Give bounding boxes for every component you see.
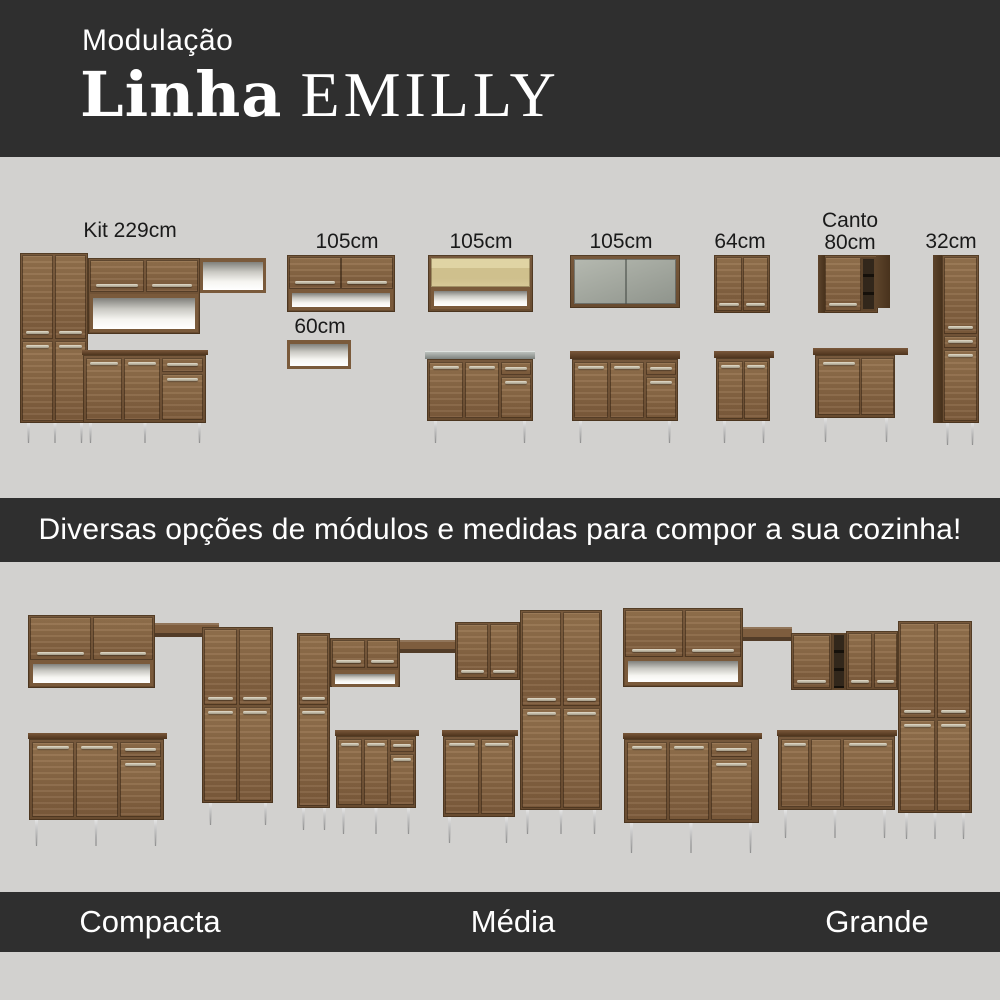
cabinet-leg bbox=[374, 808, 379, 834]
module-wall-cabinet-105a bbox=[287, 255, 395, 313]
cabinet-legs bbox=[301, 808, 327, 830]
cabinet-leg bbox=[433, 421, 438, 443]
cabinet-handle bbox=[716, 763, 747, 766]
label-wall-105-c: 105cm bbox=[561, 231, 681, 253]
kitchen-grande bbox=[615, 602, 993, 864]
cabinet-door bbox=[90, 260, 144, 292]
cabinet-leg bbox=[26, 423, 31, 443]
footer-strip bbox=[0, 952, 1000, 1000]
module-wall-corner-80 bbox=[818, 255, 890, 313]
cabinet-legs bbox=[88, 423, 202, 443]
cabinet-handle bbox=[96, 284, 137, 287]
cabinet-door bbox=[465, 362, 499, 418]
cabinet-handle bbox=[433, 366, 459, 369]
cabinet-leg bbox=[689, 823, 694, 853]
cabinet-handle bbox=[567, 698, 595, 701]
cabinet-door bbox=[93, 617, 153, 660]
title-linha: Linha bbox=[80, 58, 282, 131]
cabinet-handle bbox=[152, 284, 192, 287]
cabinet-handle bbox=[347, 281, 387, 284]
cabinet-leg bbox=[748, 823, 753, 853]
cabinet-handle bbox=[295, 281, 335, 284]
cabinet-door bbox=[390, 754, 414, 805]
cabinet-door bbox=[627, 742, 667, 820]
cabinet-handle bbox=[632, 746, 662, 749]
open-shelf bbox=[200, 258, 266, 293]
cabinet-door bbox=[490, 624, 518, 678]
cabinet-door bbox=[793, 635, 830, 688]
kitchen-compacta bbox=[20, 608, 300, 860]
cabinet-leg bbox=[823, 418, 828, 442]
cabinet-handle bbox=[716, 748, 747, 751]
cabinet-leg bbox=[94, 820, 99, 846]
cabinet-handle bbox=[941, 724, 966, 727]
cabinet-leg bbox=[904, 813, 909, 839]
label-grande: Grande bbox=[787, 892, 967, 952]
cabinet-leg bbox=[301, 808, 306, 830]
kitchen-media bbox=[295, 608, 607, 866]
cabinet-legs bbox=[629, 823, 753, 853]
cabinet-handle bbox=[823, 362, 855, 365]
cabinet-leg bbox=[406, 808, 411, 834]
cabinet-door bbox=[718, 361, 743, 419]
cabinet-handle bbox=[505, 367, 528, 370]
cabinet-handle bbox=[90, 362, 117, 365]
cabinet-door bbox=[445, 739, 479, 814]
open-shelf bbox=[289, 289, 393, 310]
cabinet-door bbox=[781, 739, 809, 807]
cabinet-leg bbox=[34, 820, 39, 846]
cabinet-legs bbox=[447, 817, 509, 843]
cabinet-handle bbox=[26, 345, 50, 348]
cabinet-door bbox=[204, 629, 237, 705]
open-shelf-dark bbox=[832, 633, 846, 690]
header: Modulação Linha EMILLY bbox=[0, 0, 1000, 157]
cabinet-handle bbox=[26, 331, 50, 334]
cabinet-door bbox=[364, 739, 388, 805]
cabinet-door bbox=[900, 623, 935, 718]
cabinet-handle bbox=[167, 378, 198, 381]
cabinet-handle bbox=[904, 724, 931, 727]
cabinet-leg bbox=[504, 817, 509, 843]
cabinet-door bbox=[744, 361, 768, 419]
cabinet-handle bbox=[851, 680, 869, 683]
kitchens-section bbox=[0, 562, 1000, 892]
label-compacta: Compacta bbox=[60, 892, 240, 952]
cabinet-handle bbox=[632, 649, 676, 652]
page: Modulação Linha EMILLY Kit 229cm 105cm 6… bbox=[0, 0, 1000, 1000]
cabinet-legs bbox=[578, 421, 672, 443]
cabinet-legs bbox=[26, 423, 84, 443]
countertop bbox=[714, 351, 774, 358]
open-shelf bbox=[625, 657, 741, 685]
cabinet-handle bbox=[243, 711, 267, 714]
cabinet-handle bbox=[341, 743, 359, 746]
cabinet-handle bbox=[59, 331, 83, 334]
cabinet-legs bbox=[904, 813, 966, 839]
cabinet-handle bbox=[393, 758, 411, 761]
label-wall-105-b: 105cm bbox=[421, 231, 541, 253]
cabinet-leg bbox=[522, 421, 527, 443]
cabinet-door bbox=[900, 720, 935, 811]
cabinet-door bbox=[818, 358, 860, 415]
module-wall-cabinet-105b bbox=[428, 255, 533, 312]
cabinet-leg bbox=[578, 421, 583, 443]
cabinet-leg bbox=[263, 803, 268, 825]
header-kicker: Modulação bbox=[82, 24, 233, 58]
cabinet-handle bbox=[948, 354, 973, 357]
cabinet-legs bbox=[208, 803, 268, 825]
cabinet-handle bbox=[784, 743, 805, 746]
cabinet-handle bbox=[243, 697, 267, 700]
label-kit-229: Kit 229cm bbox=[40, 220, 220, 242]
cabinet-door bbox=[146, 260, 198, 292]
cabinet-handle bbox=[527, 698, 557, 701]
cabinet-leg bbox=[559, 810, 564, 834]
cabinet-handle bbox=[469, 366, 495, 369]
cabinet-handle bbox=[208, 697, 233, 700]
cabinet-door bbox=[646, 377, 676, 418]
side-panel bbox=[818, 255, 825, 313]
cabinet-legs bbox=[34, 820, 158, 846]
label-media: Média bbox=[423, 892, 603, 952]
cabinet-leg bbox=[525, 810, 530, 834]
cabinet-handle bbox=[167, 363, 198, 366]
module-base-cabinet-105 bbox=[570, 351, 680, 448]
cabinet-leg bbox=[961, 813, 966, 839]
cabinet-door bbox=[239, 629, 271, 705]
drawer-front bbox=[646, 362, 676, 375]
cabinet-handle bbox=[849, 743, 887, 746]
cabinet-door bbox=[669, 742, 709, 820]
cabinet-door bbox=[367, 640, 398, 668]
cabinet-handle bbox=[829, 303, 856, 306]
cabinet-handle bbox=[81, 746, 113, 749]
module-base-cabinet-64 bbox=[714, 351, 774, 447]
cabinet-handle bbox=[208, 711, 233, 714]
cabinet-door bbox=[76, 742, 118, 817]
drawer-front bbox=[162, 358, 203, 372]
cabinet-door bbox=[429, 362, 463, 418]
cabinet-leg bbox=[153, 820, 158, 846]
cabinet-door bbox=[825, 257, 861, 311]
banner-text: Diversas opções de módulos e medidas par… bbox=[38, 513, 961, 547]
sink-countertop bbox=[425, 351, 535, 359]
cabinet-leg bbox=[667, 421, 672, 443]
cabinet-legs bbox=[823, 418, 889, 442]
drawer-front bbox=[390, 739, 414, 752]
cabinet-door bbox=[944, 257, 977, 334]
cabinet-handle bbox=[125, 763, 156, 766]
cabinet-handle bbox=[527, 712, 557, 715]
cabinet-handle bbox=[747, 365, 765, 368]
cabinet-leg bbox=[833, 810, 838, 838]
cabinet-handle bbox=[367, 743, 385, 746]
banner: Diversas opções de módulos e medidas par… bbox=[0, 498, 1000, 562]
module-kit-229cm bbox=[20, 253, 268, 449]
cabinet-legs bbox=[525, 810, 597, 834]
cabinet-leg bbox=[629, 823, 634, 853]
open-shelf bbox=[30, 660, 153, 686]
label-wall-105-a: 105cm bbox=[287, 231, 407, 253]
cabinet-legs bbox=[433, 421, 527, 443]
cabinet-handle bbox=[904, 710, 931, 713]
cabinet-door bbox=[22, 341, 53, 421]
label-canto-line1: Canto bbox=[790, 210, 910, 232]
module-tall-cabinet-32 bbox=[933, 255, 979, 447]
cabinet-handle bbox=[719, 303, 739, 306]
cabinet-door bbox=[563, 708, 600, 808]
cabinet-handle bbox=[797, 680, 825, 683]
cabinet-door bbox=[299, 707, 328, 806]
cabinet-door bbox=[457, 624, 488, 678]
cabinet-handle bbox=[941, 710, 966, 713]
cabinet-handle bbox=[37, 746, 69, 749]
cabinet-handle bbox=[37, 652, 83, 655]
label-tall-32: 32cm bbox=[891, 231, 1000, 253]
cabinet-door bbox=[162, 374, 203, 420]
cabinet-leg bbox=[197, 423, 202, 443]
side-panel bbox=[876, 255, 890, 308]
drawer-front bbox=[711, 742, 752, 757]
cabinet-leg bbox=[970, 423, 975, 445]
drawer-front bbox=[120, 742, 161, 757]
cabinet-door bbox=[332, 640, 365, 668]
cabinet-leg bbox=[592, 810, 597, 834]
cabinet-handle bbox=[336, 660, 361, 663]
cabinet-door bbox=[610, 362, 644, 418]
countertop bbox=[813, 348, 908, 355]
module-wall-cabinet-64 bbox=[714, 255, 770, 313]
cabinet-door bbox=[625, 610, 683, 657]
label-niche-60: 60cm bbox=[258, 316, 382, 338]
drawer-front bbox=[944, 336, 977, 348]
cabinet-door bbox=[341, 257, 393, 289]
cabinet-leg bbox=[882, 810, 887, 838]
cabinet-handle bbox=[614, 366, 640, 369]
countertop bbox=[570, 351, 680, 359]
cabinet-handle bbox=[948, 326, 973, 329]
glass-door bbox=[574, 259, 676, 304]
cabinet-leg bbox=[143, 423, 148, 443]
label-wall-64: 64cm bbox=[680, 231, 800, 253]
cabinet-handle bbox=[493, 670, 514, 673]
cabinet-handle bbox=[302, 697, 324, 700]
cabinet-door bbox=[124, 358, 160, 420]
cabinet-door bbox=[574, 362, 608, 418]
cabinet-leg bbox=[722, 421, 727, 443]
cabinet-door bbox=[743, 257, 768, 311]
cabinet-handle bbox=[449, 743, 475, 746]
cabinet-legs bbox=[341, 808, 411, 834]
cabinet-handle bbox=[567, 712, 595, 715]
cabinet-door bbox=[120, 759, 161, 817]
cabinet-handle bbox=[721, 365, 740, 368]
cabinet-door bbox=[501, 377, 531, 418]
cabinet-door bbox=[481, 739, 513, 814]
cabinet-handle bbox=[948, 340, 973, 343]
cabinet-handle bbox=[371, 660, 395, 663]
cabinet-door bbox=[55, 255, 86, 339]
cabinet-door bbox=[874, 633, 897, 688]
drawer-front bbox=[501, 362, 531, 375]
cabinet-door bbox=[861, 358, 894, 415]
open-shelf bbox=[431, 287, 530, 309]
cabinet-handle bbox=[461, 670, 485, 673]
cabinet-door bbox=[289, 257, 341, 289]
cabinet-handle bbox=[650, 381, 673, 384]
title-brand-emilly: EMILLY bbox=[300, 58, 559, 132]
cabinet-legs bbox=[945, 423, 975, 445]
cabinet-door bbox=[563, 612, 600, 706]
cabinet-legs bbox=[722, 421, 766, 443]
cabinet-door bbox=[204, 707, 237, 801]
cabinet-door bbox=[522, 612, 561, 706]
cabinet-leg bbox=[761, 421, 766, 443]
cabinet-leg bbox=[53, 423, 58, 443]
cabinet-leg bbox=[783, 810, 788, 838]
cabinet-leg bbox=[341, 808, 346, 834]
bridge-shelf bbox=[743, 627, 792, 641]
cabinet-door bbox=[811, 739, 841, 807]
cabinet-door bbox=[685, 610, 741, 657]
cabinet-handle bbox=[692, 649, 735, 652]
cabinet-door bbox=[522, 708, 561, 808]
cabinet-door bbox=[86, 358, 122, 420]
side-panel bbox=[933, 255, 942, 423]
cabinet-handle bbox=[746, 303, 765, 306]
sliding-panel bbox=[431, 258, 530, 287]
cabinet-door bbox=[843, 739, 893, 807]
cabinet-leg bbox=[933, 813, 938, 839]
cabinet-leg bbox=[79, 423, 84, 443]
bridge-shelf bbox=[400, 640, 455, 653]
open-shelf bbox=[287, 340, 351, 369]
cabinet-handle bbox=[128, 362, 155, 365]
cabinet-handle bbox=[100, 652, 146, 655]
cabinet-door bbox=[711, 759, 752, 820]
cabinet-door bbox=[299, 635, 328, 705]
cabinet-door bbox=[944, 350, 977, 421]
page-title: Linha EMILLY bbox=[80, 58, 560, 132]
cabinet-door bbox=[338, 739, 362, 805]
bottom-band: Compacta Média Grande bbox=[0, 892, 1000, 952]
cabinet-door bbox=[716, 257, 742, 311]
cabinet-leg bbox=[88, 423, 93, 443]
modules-section: Kit 229cm 105cm 60cm 105cm 105cm 64cm Ca… bbox=[0, 157, 1000, 498]
open-shelf-dark bbox=[861, 257, 876, 311]
cabinet-leg bbox=[945, 423, 950, 445]
cabinet-door bbox=[239, 707, 271, 801]
cabinet-handle bbox=[302, 711, 324, 714]
cabinet-handle bbox=[578, 366, 604, 369]
module-wall-cabinet-105c bbox=[570, 255, 680, 308]
cabinet-leg bbox=[322, 808, 327, 830]
cabinet-door bbox=[937, 623, 970, 718]
cabinet-leg bbox=[447, 817, 452, 843]
module-niche-60cm bbox=[287, 340, 351, 369]
cabinet-door bbox=[32, 742, 74, 817]
cabinet-handle bbox=[59, 345, 83, 348]
open-shelf bbox=[332, 670, 398, 687]
module-base-corner-80 bbox=[813, 348, 908, 447]
cabinet-door bbox=[30, 617, 91, 660]
module-sink-base-cabinet bbox=[425, 351, 535, 448]
cabinet-leg bbox=[208, 803, 213, 825]
cabinet-handle bbox=[674, 746, 704, 749]
cabinet-door bbox=[848, 633, 872, 688]
cabinet-handle bbox=[505, 381, 528, 384]
cabinet-door bbox=[22, 255, 53, 339]
cabinet-handle bbox=[485, 743, 509, 746]
cabinet-handle bbox=[650, 367, 673, 370]
cabinet-handle bbox=[393, 744, 411, 747]
cabinet-handle bbox=[125, 748, 156, 751]
cabinet-legs bbox=[783, 810, 887, 838]
cabinet-door bbox=[937, 720, 970, 811]
cabinet-leg bbox=[884, 418, 889, 442]
cabinet-handle bbox=[877, 680, 894, 683]
open-shelf bbox=[90, 294, 198, 332]
